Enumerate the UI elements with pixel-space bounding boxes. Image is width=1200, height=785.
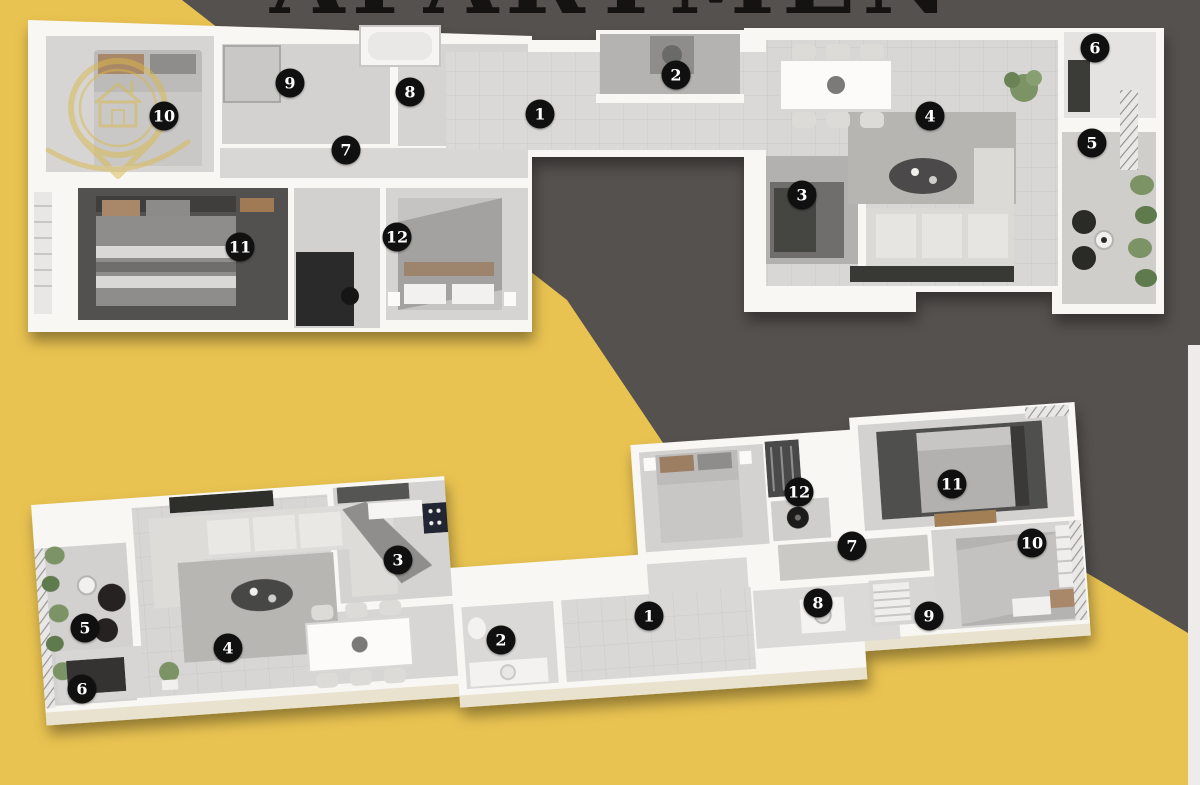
room-marker-top-6: 6 — [1081, 34, 1110, 63]
room-marker-bottom-10: 10 — [1018, 529, 1047, 558]
room-marker-top-2: 2 — [662, 61, 691, 90]
room-marker-top-9: 9 — [276, 69, 305, 98]
room-marker-bottom-7: 7 — [838, 532, 867, 561]
room-marker-bottom-2: 2 — [487, 626, 516, 655]
room-marker-top-4: 4 — [916, 102, 945, 131]
room-marker-bottom-12: 12 — [785, 478, 814, 507]
room-marker-bottom-11: 11 — [938, 470, 967, 499]
room-marker-top-8: 8 — [396, 78, 425, 107]
markers-layer: 123456789101112123456789101112 — [0, 0, 1200, 785]
room-marker-bottom-3: 3 — [384, 546, 413, 575]
floor-plan-poster: APARTMENTS 12345678910111212345678910111… — [0, 0, 1200, 785]
room-marker-top-11: 11 — [226, 233, 255, 262]
room-marker-top-1: 1 — [526, 100, 555, 129]
room-marker-top-10: 10 — [150, 102, 179, 131]
room-marker-top-12: 12 — [383, 223, 412, 252]
room-marker-top-3: 3 — [788, 181, 817, 210]
room-marker-top-5: 5 — [1078, 129, 1107, 158]
room-marker-bottom-1: 1 — [635, 602, 664, 631]
room-marker-bottom-9: 9 — [915, 602, 944, 631]
room-marker-bottom-4: 4 — [214, 634, 243, 663]
room-marker-bottom-6: 6 — [68, 675, 97, 704]
room-marker-bottom-8: 8 — [804, 589, 833, 618]
room-marker-top-7: 7 — [332, 136, 361, 165]
room-marker-bottom-5: 5 — [71, 614, 100, 643]
